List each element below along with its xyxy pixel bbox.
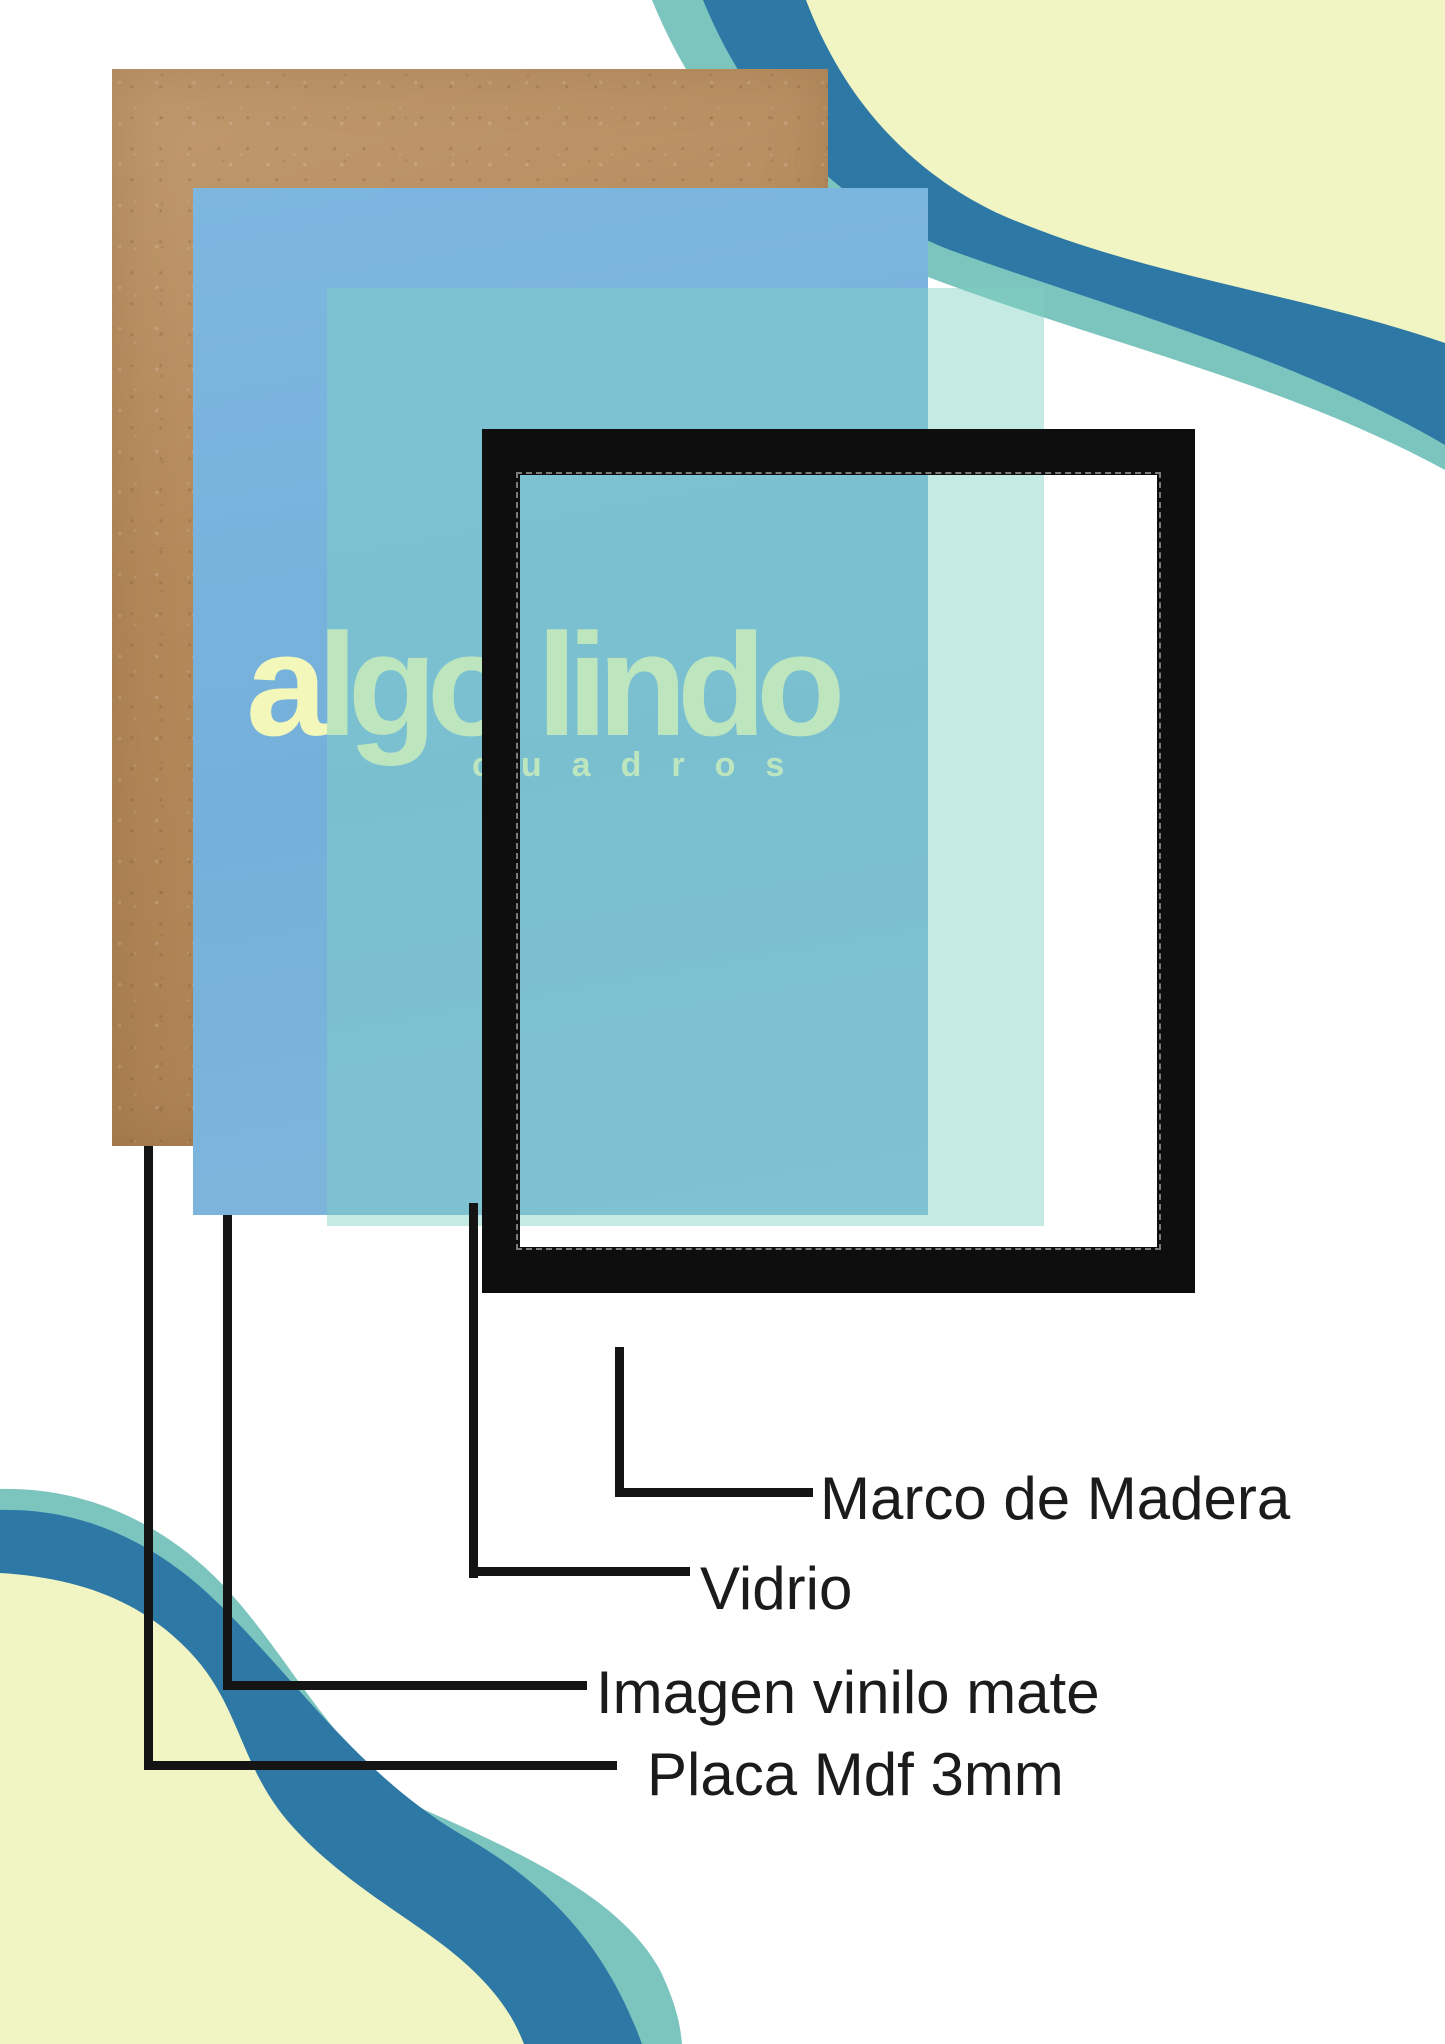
callout-line-marco-horizontal <box>615 1488 813 1497</box>
product-layers-diagram: algo lindo cuadros Marco de Madera Vidri… <box>0 0 1445 2044</box>
callout-line-vidrio-horizontal <box>469 1567 690 1576</box>
label-marco-de-madera: Marco de Madera <box>820 1466 1290 1532</box>
callout-line-placa-horizontal <box>144 1761 617 1770</box>
callout-line-placa-vertical <box>144 1146 153 1770</box>
label-vidrio: Vidrio <box>700 1556 852 1622</box>
callout-line-imagen-vertical <box>223 1215 232 1690</box>
callout-line-vidrio-vertical <box>469 1203 478 1578</box>
frame-distress-edge <box>516 472 1161 1250</box>
callout-line-imagen-horizontal <box>223 1681 587 1690</box>
label-placa-mdf-3mm: Placa Mdf 3mm <box>647 1742 1064 1808</box>
label-imagen-vinilo-mate: Imagen vinilo mate <box>596 1660 1100 1726</box>
callout-line-marco-vertical <box>615 1347 624 1497</box>
